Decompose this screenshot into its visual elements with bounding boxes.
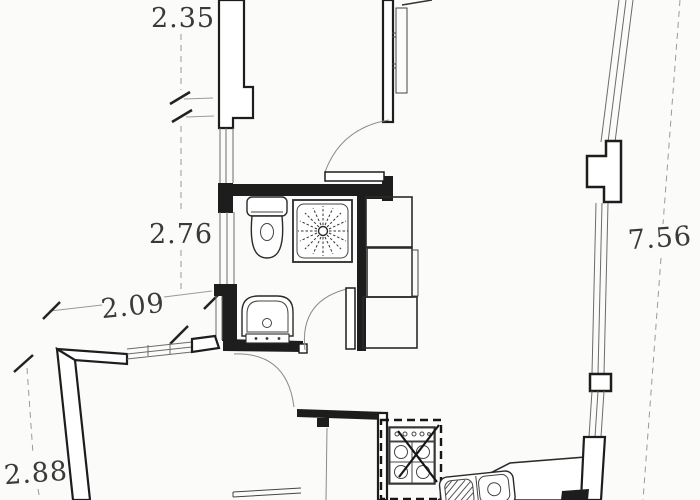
right-wall-window-mid xyxy=(592,203,608,374)
bedroom-left-wall xyxy=(219,0,253,128)
right-wall-pier-upper xyxy=(587,141,621,202)
kitchen-partition-line xyxy=(326,428,327,500)
right-wall-window-upper xyxy=(601,0,633,142)
right-wall-pier-lower xyxy=(590,374,611,391)
shower-drain xyxy=(319,227,328,236)
bathroom-door xyxy=(304,288,355,350)
wall-break-marks xyxy=(170,92,214,122)
bathroom-door-stop xyxy=(299,344,307,353)
closet-units xyxy=(363,197,418,348)
stove xyxy=(389,427,435,484)
kitchen-top-wall xyxy=(297,409,386,427)
dimension-label-living-width: 2.09 xyxy=(99,288,166,326)
floor-plan-canvas: 2.35 2.76 2.09 2.88 7.56 xyxy=(0,0,700,500)
left-window-lower xyxy=(216,296,222,340)
dimension-label-right-side: 7.56 xyxy=(627,221,693,256)
kitchen-sink xyxy=(439,470,516,500)
toilet xyxy=(247,197,287,258)
living-room-door-arc xyxy=(234,354,294,407)
living-room-furniture-edge xyxy=(233,488,301,497)
bathroom-right-wall xyxy=(357,196,366,351)
right-wall-window-lower xyxy=(589,391,604,437)
dimension-label-living-side: 2.88 xyxy=(3,456,69,491)
top-edge-cut-line xyxy=(402,0,432,5)
washbasin xyxy=(242,296,293,343)
bedroom-door xyxy=(325,120,389,181)
bathroom-lower-left-corner-block xyxy=(214,284,237,341)
kitchen-left-wall xyxy=(378,413,387,500)
dimension-label-bathroom-height: 2.76 xyxy=(149,219,213,250)
hall-tall-cabinet xyxy=(392,8,407,93)
left-window-mid xyxy=(220,212,234,284)
dimension-label-top-width: 2.35 xyxy=(151,3,215,34)
living-room-wall-right-of-window xyxy=(192,336,219,352)
shower xyxy=(293,200,352,262)
living-room-window xyxy=(127,342,192,359)
floor-plan-drawing: 2.35 2.76 2.09 2.88 7.56 xyxy=(0,0,700,500)
bedroom-right-wall xyxy=(383,0,393,122)
left-window-upper xyxy=(220,128,233,183)
